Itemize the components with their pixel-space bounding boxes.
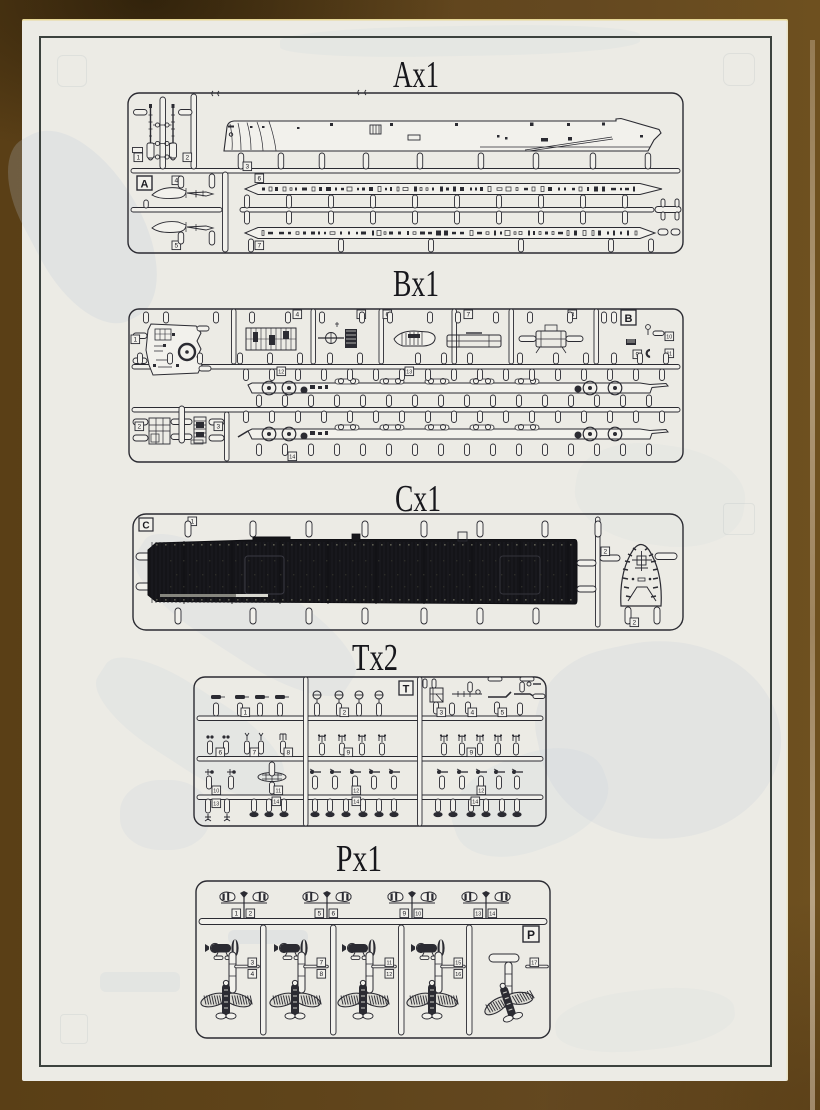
svg-text:10: 10 bbox=[666, 335, 672, 341]
svg-text:12: 12 bbox=[353, 789, 359, 795]
svg-text:5: 5 bbox=[174, 243, 178, 250]
svg-text:4: 4 bbox=[250, 971, 254, 978]
svg-text:2: 2 bbox=[632, 620, 636, 627]
svg-text:1: 1 bbox=[243, 710, 247, 717]
svg-text:Bx1: Bx1 bbox=[393, 263, 439, 305]
svg-text:5: 5 bbox=[317, 911, 321, 918]
svg-text:4: 4 bbox=[295, 312, 299, 319]
svg-text:5: 5 bbox=[500, 710, 504, 717]
svg-text:3: 3 bbox=[250, 960, 254, 967]
svg-text:7: 7 bbox=[319, 960, 323, 967]
svg-text:8: 8 bbox=[319, 971, 323, 978]
svg-text:17: 17 bbox=[531, 961, 537, 967]
svg-text:7: 7 bbox=[466, 312, 470, 319]
svg-text:2: 2 bbox=[342, 710, 346, 717]
svg-text:14: 14 bbox=[489, 912, 495, 918]
svg-text:13: 13 bbox=[475, 912, 481, 918]
svg-text:10: 10 bbox=[415, 912, 421, 918]
svg-text:14: 14 bbox=[472, 800, 478, 806]
svg-text:3: 3 bbox=[245, 164, 249, 171]
svg-text:2: 2 bbox=[603, 549, 607, 556]
svg-text:B: B bbox=[625, 313, 633, 325]
svg-text:1: 1 bbox=[133, 337, 137, 344]
svg-text:13: 13 bbox=[213, 802, 219, 808]
svg-text:16: 16 bbox=[455, 972, 461, 978]
svg-text:9: 9 bbox=[346, 750, 350, 757]
svg-text:12: 12 bbox=[386, 972, 392, 978]
svg-text:7: 7 bbox=[257, 243, 261, 250]
svg-text:7: 7 bbox=[252, 750, 256, 757]
svg-text:2: 2 bbox=[185, 155, 189, 162]
svg-text:8: 8 bbox=[286, 750, 290, 757]
svg-text:15: 15 bbox=[455, 961, 461, 967]
svg-text:12: 12 bbox=[478, 789, 484, 795]
svg-text:Ax1: Ax1 bbox=[393, 54, 439, 96]
svg-text:13: 13 bbox=[406, 370, 412, 376]
svg-text:A: A bbox=[141, 179, 149, 191]
svg-text:3: 3 bbox=[439, 710, 443, 717]
svg-text:3: 3 bbox=[216, 424, 220, 431]
svg-text:1: 1 bbox=[234, 911, 238, 918]
svg-text:6: 6 bbox=[331, 911, 335, 918]
svg-text:Px1: Px1 bbox=[336, 838, 382, 880]
svg-text:C: C bbox=[142, 521, 149, 532]
svg-text:6: 6 bbox=[218, 750, 222, 757]
svg-text:1: 1 bbox=[136, 155, 140, 162]
svg-text:Tx2: Tx2 bbox=[352, 637, 398, 679]
svg-text:11: 11 bbox=[275, 789, 281, 795]
svg-text:11: 11 bbox=[386, 961, 392, 967]
svg-text:2: 2 bbox=[137, 424, 141, 431]
svg-text:P: P bbox=[527, 928, 535, 942]
svg-text:T: T bbox=[403, 684, 410, 696]
svg-text:2: 2 bbox=[248, 911, 252, 918]
svg-text:14: 14 bbox=[289, 455, 295, 461]
svg-text:14: 14 bbox=[353, 800, 359, 806]
svg-text:6: 6 bbox=[257, 176, 261, 183]
svg-text:14: 14 bbox=[273, 800, 279, 806]
svg-text:12: 12 bbox=[278, 370, 284, 376]
svg-text:10: 10 bbox=[213, 789, 219, 795]
svg-text:4: 4 bbox=[470, 710, 474, 717]
svg-text:9: 9 bbox=[402, 911, 406, 918]
svg-text:9: 9 bbox=[469, 750, 473, 757]
